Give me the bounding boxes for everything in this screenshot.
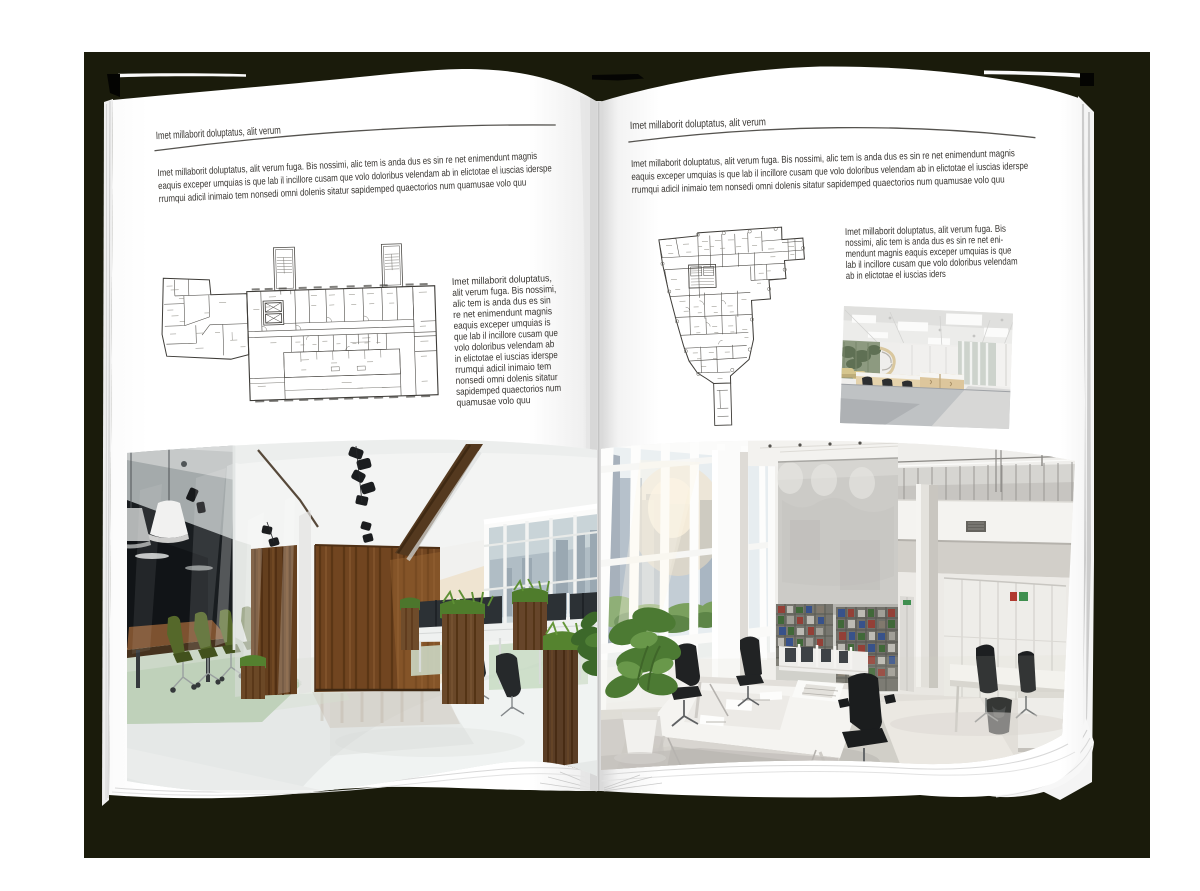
svg-text:ab in elictotae el iuscias ide: ab in elictotae el iuscias iders (846, 269, 946, 282)
